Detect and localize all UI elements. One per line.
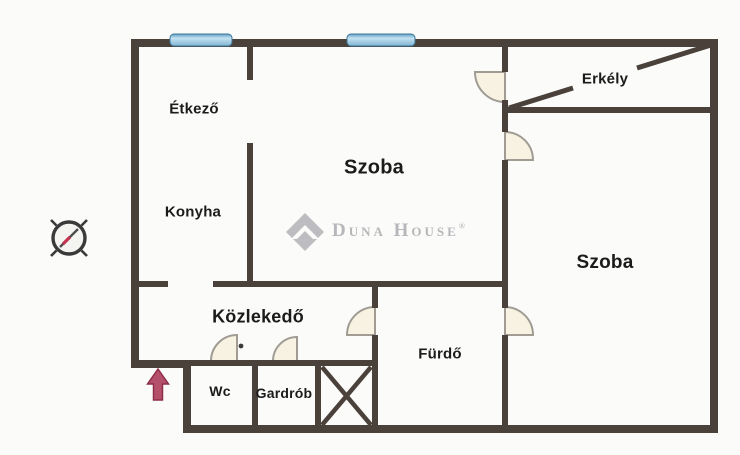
room-label-etkezo: Étkező [169,101,219,118]
room-label-wc: Wc [209,383,230,399]
door-arc-balcony [475,72,505,102]
door-arc-wc [211,335,237,361]
window-left [170,34,232,46]
room-label-konyha: Konyha [165,204,221,221]
room-label-erkely: Erkély [582,71,628,88]
balcony-diagonal-left [509,88,573,108]
crossed-box-shaft [322,367,371,425]
room-label-gardrob: Gardrób [256,385,313,401]
window-right [347,34,415,46]
room-label-furdo: Fürdő [418,346,462,363]
door-arc-wardrobe [273,337,297,361]
door-arc-bathroom [347,307,375,335]
watermark-brand-text: Duna House® [332,220,465,242]
door-arc-right-room-upper [505,132,533,160]
watermark-logo-diamond [286,213,324,251]
door-pivot-dot [239,344,244,349]
compass-rose-icon [51,220,87,256]
registered-mark: ® [459,222,465,231]
balcony-diagonal-right [637,45,711,68]
room-label-kozlekedo: Közlekedő [212,307,304,328]
floorplan-canvas: Étkező Konyha Szoba Erkély Szoba Közleke… [0,0,740,455]
entrance-arrow-icon [148,369,169,400]
room-label-szoba-right: Szoba [577,252,634,274]
door-arc-right-room-lower [505,307,533,335]
room-label-szoba-middle: Szoba [344,157,404,180]
